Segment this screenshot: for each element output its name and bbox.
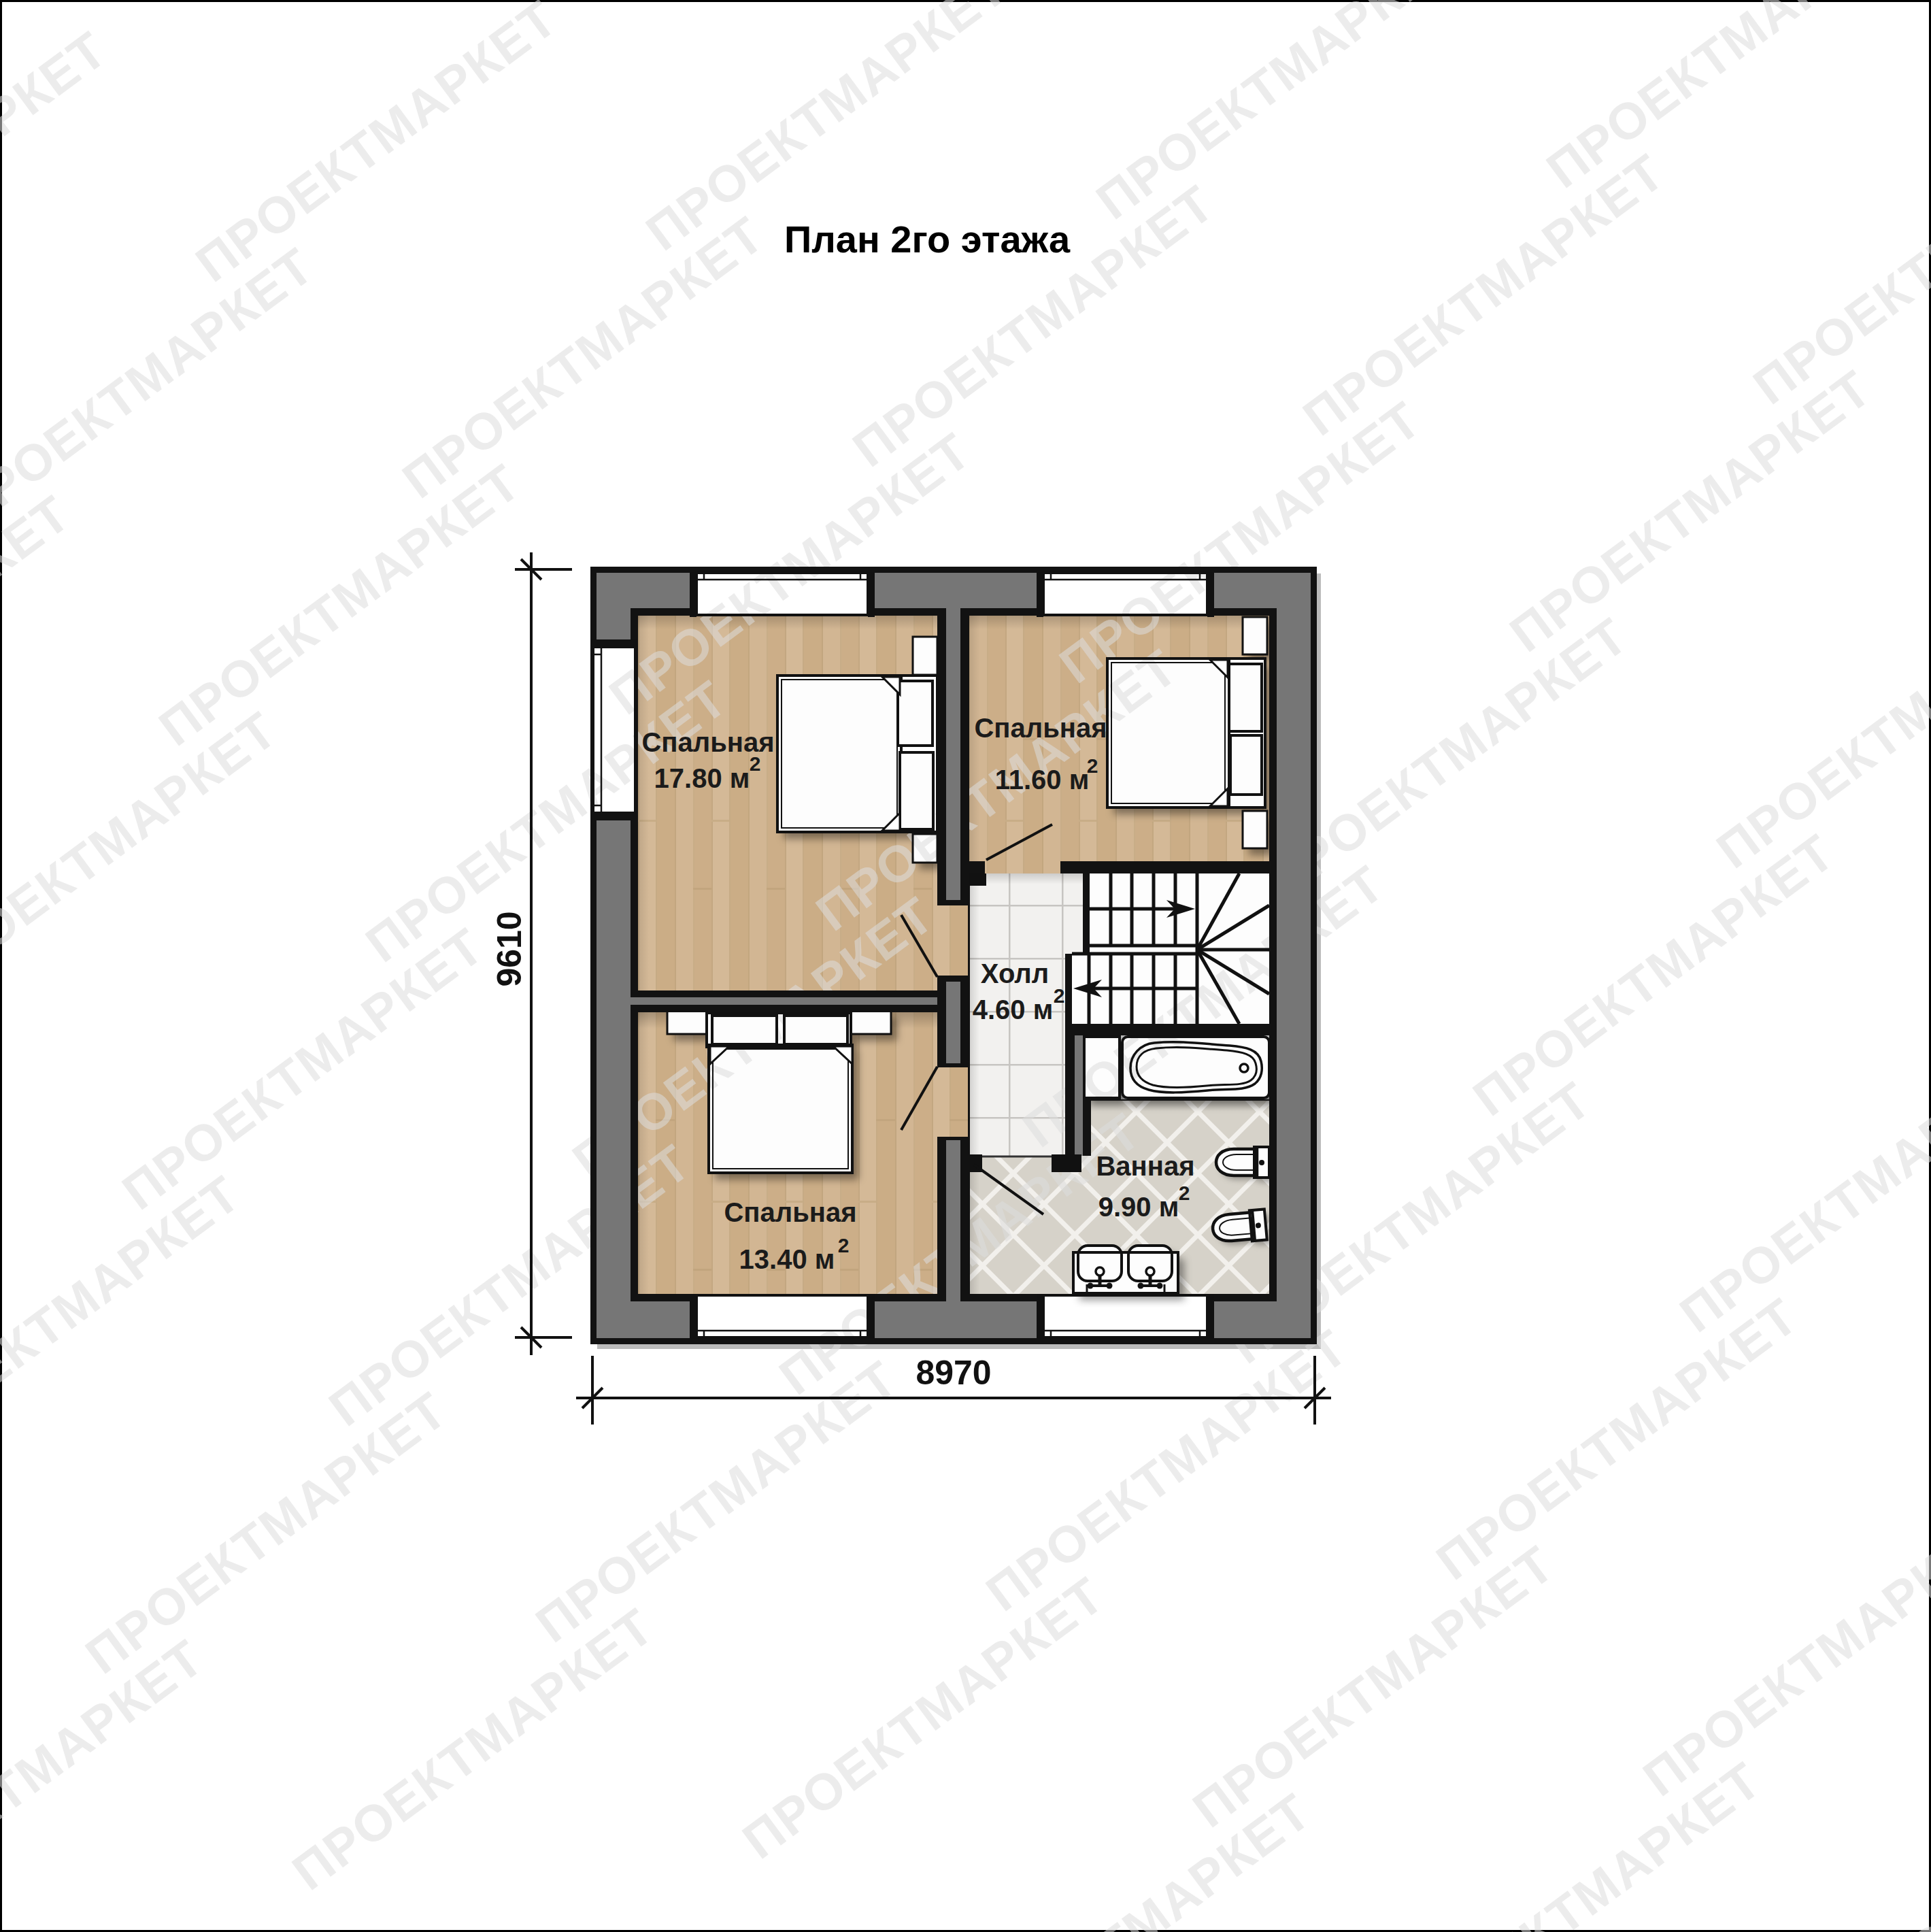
svg-text:2: 2 [1087, 754, 1098, 777]
svg-text:17.80 м: 17.80 м [654, 763, 750, 793]
svg-text:9610: 9610 [490, 911, 528, 986]
svg-text:2: 2 [1179, 1182, 1190, 1204]
svg-text:Спальная: Спальная [974, 713, 1107, 743]
svg-text:2: 2 [1054, 984, 1065, 1007]
svg-text:Спальная: Спальная [724, 1197, 856, 1227]
svg-text:2: 2 [838, 1234, 850, 1256]
svg-text:8970: 8970 [916, 1354, 991, 1392]
svg-text:План 2го этажа: План 2го этажа [784, 218, 1071, 261]
svg-text:9.90 м: 9.90 м [1098, 1192, 1179, 1222]
svg-text:Ванная: Ванная [1096, 1151, 1194, 1181]
svg-text:13.40 м: 13.40 м [739, 1244, 835, 1274]
svg-text:2: 2 [750, 752, 761, 775]
svg-text:11.60 м: 11.60 м [995, 765, 1090, 795]
svg-text:Холл: Холл [981, 959, 1049, 988]
svg-text:4.60 м: 4.60 м [973, 995, 1054, 1025]
